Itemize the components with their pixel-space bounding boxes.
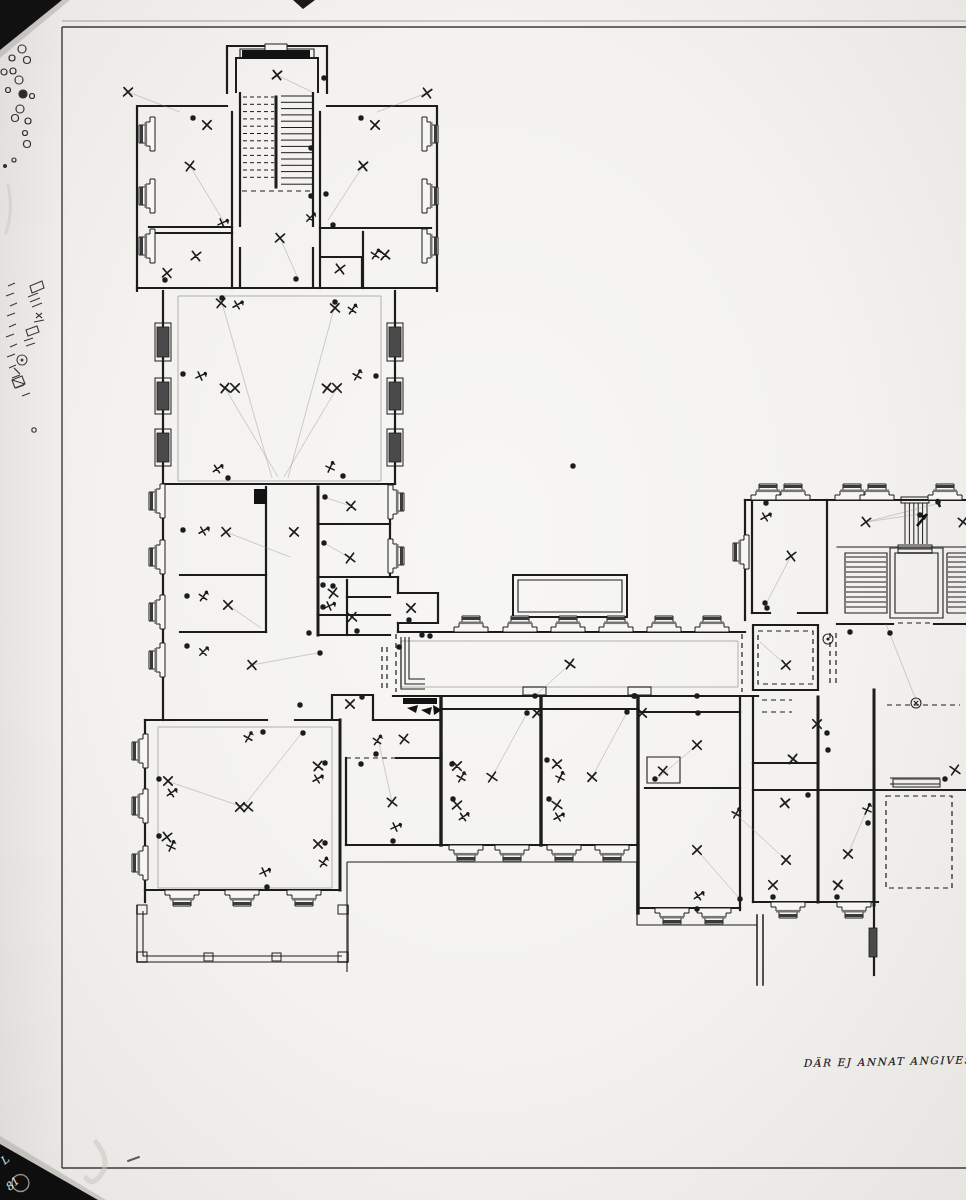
outlet-dot [332,299,337,304]
stairwell-hatching [243,96,966,607]
outlet-dot [762,600,767,605]
fixture-x-mark [861,517,870,526]
air-bubbles [1,45,35,168]
outlet-dot [321,75,326,80]
outlet-dot [694,693,699,698]
fixture-x-mark [313,761,322,770]
fixture-x-mark [163,269,172,278]
outlet-dot [358,115,363,120]
window-pilaster-icon [860,484,894,500]
outlet-dot [359,694,364,699]
switch-flag-mark [199,590,210,600]
outlet-dot [321,540,326,545]
fixture-x-mark [222,528,231,537]
outlet-dot [396,644,401,649]
fixture-x-mark [164,777,172,785]
window-pilaster-icon [287,890,321,906]
window-pilaster-icon [595,845,629,861]
outlet-dot [322,494,327,499]
switch-flag-mark [371,248,382,258]
switch-flag-mark [352,369,363,380]
window-pilaster-icon [776,484,810,500]
outlet-dot [156,776,161,781]
switch-flag-mark [199,525,210,536]
window-pilaster-icon [697,908,731,924]
switch-flag-mark [213,463,224,473]
switch-flag-mark [307,212,316,221]
outlet-dot [297,702,302,707]
fixture-x-mark [552,800,562,810]
switch-flag-marks [166,212,874,900]
switch-flag-mark [761,511,772,522]
switch-flag-mark [862,802,874,814]
window-pilaster-icon [599,616,633,632]
outlet-dot [390,838,395,843]
outlet-dot [427,633,432,638]
outlet-dot [694,906,699,911]
fixture-x-mark [191,251,200,260]
outlet-dot [162,277,167,282]
switch-flag-mark [554,811,565,822]
window-pilaster-icon [139,117,155,151]
fixture-x-mark [335,264,344,273]
fixture-x-mark [371,121,380,130]
outlet-dot [180,371,185,376]
fixture-x-mark [162,832,171,841]
switch-flag-mark [348,303,359,313]
window-pilaster-icon [139,229,155,263]
outlet-dot [322,840,327,845]
fixture-x-mark [399,734,408,743]
fixture-x-mark [124,88,133,97]
switch-flag-mark [325,599,337,611]
window-pilaster-icon [132,846,148,880]
window-pilaster-icon [388,539,404,573]
fixture-x-mark [272,70,281,79]
switch-flag-mark [459,811,470,821]
photo-smudges [6,185,139,1192]
switch-flag-mark [243,731,254,742]
outlet-dot [825,747,830,752]
fixture-x-mark [844,850,853,859]
film-fringes [0,0,106,1200]
outlet-dot [737,896,742,901]
window-pilaster-icon [503,616,537,632]
fixture-x-marks [124,70,966,889]
outlet-dot [695,710,700,715]
fixture-x-mark [333,384,342,393]
outlet-dot [942,776,947,781]
window-pilaster-icon [149,540,165,574]
fixture-x-mark [693,741,702,750]
fixture-x-mark [833,880,842,889]
outlet-dot [180,527,185,532]
outlet-dot [330,222,335,227]
fixture-x-mark [290,528,299,537]
window-pilaster-icon [695,616,729,632]
outlet-dot [320,604,325,609]
window-pilaster-icon [388,485,404,519]
window-pilaster-icon [733,535,749,569]
outlet-dots [156,75,947,911]
outlet-dot [322,760,327,765]
outlet-dot [264,884,269,889]
window-pilaster-icon [422,117,438,151]
fixture-x-mark [220,383,229,392]
switch-flag-mark [391,820,403,832]
outlet-dot [340,473,345,478]
outlet-dot [865,820,870,825]
window-pilaster-icon [647,616,681,632]
fixture-x-mark [185,161,194,170]
switch-flag-mark [456,771,467,782]
film-corner-triangle [293,0,315,9]
window-pilaster-icon [449,845,483,861]
fixture-x-mark [387,797,396,806]
fixture-x-mark [243,802,252,811]
outlet-dot [770,894,775,899]
window-pilasters [132,117,962,924]
outlet-dot [449,761,454,766]
outlet-dot [652,776,657,781]
switch-flag-mark [373,734,384,744]
window-pilaster-icon [139,179,155,213]
fixture-x-mark [950,765,960,775]
plan-thin-lines [137,49,966,972]
outlet-dot [308,193,313,198]
outlet-dot [330,583,335,588]
outlet-dot [917,512,922,517]
outlet-dot [763,500,768,505]
outlet-dot [824,730,829,735]
outlet-dot [306,630,311,635]
fixture-x-mark [407,604,416,613]
outlet-dot [570,463,575,468]
window-pilaster-icon [132,789,148,823]
window-pilaster-icon [422,179,438,213]
fixture-x-mark [248,661,257,670]
switch-flag-mark [200,646,209,655]
window-pilaster-icon [495,845,529,861]
fixture-x-mark [380,250,389,259]
fixture-x-mark [782,856,791,865]
switch-flag-mark [313,773,324,784]
fixture-x-mark [453,801,462,810]
fixture-x-mark [358,161,367,170]
fixture-x-mark [553,760,562,769]
fixture-x-mark [588,773,597,782]
fixture-x-mark [786,551,795,560]
outlet-dot [320,582,325,587]
outlet-dot [805,792,810,797]
window-pilaster-icon [551,616,585,632]
window-pilaster-icon [132,734,148,768]
plan-walls [137,46,966,985]
window-pilaster-icon [165,890,199,906]
scanned-floor-plan [0,0,966,1200]
outlet-dot [544,757,549,762]
outlet-dot [373,751,378,756]
fixture-x-mark [231,384,240,393]
outlet-dot [450,796,455,801]
outlet-dot [764,605,769,610]
wiring-lines [128,75,936,897]
switch-flag-mark [166,839,178,851]
switch-flag-mark [196,369,208,381]
window-pilaster-icon [771,902,805,918]
fixture-x-mark [203,121,212,130]
edge-stamp-marks [6,281,44,432]
fixture-x-mark [348,613,357,622]
outlet-dot [323,191,328,196]
outlet-dot [532,693,537,698]
outlet-dot [293,276,298,281]
outlet-dot [354,628,359,633]
fixture-x-mark [331,304,340,313]
fixture-x-mark [276,234,285,243]
outlet-dot [260,729,265,734]
fixture-x-mark [346,700,354,708]
outlet-dot [847,629,852,634]
outlet-dot [419,632,424,637]
window-pilaster-icon [149,595,165,629]
switch-flag-mark [260,865,272,877]
outlet-dot [373,373,378,378]
fixture-x-mark [346,501,355,510]
switch-flag-mark [233,299,244,310]
fixture-x-mark [322,383,331,392]
outlet-dot [358,761,363,766]
fixture-x-mark [769,881,778,890]
fixture-x-mark [345,553,354,562]
circled-fixture-marks [823,634,921,708]
outlet-dot [624,709,629,714]
window-pilaster-icon [422,229,438,263]
fixture-x-mark [782,661,791,670]
outlet-dot [887,630,892,635]
fixture-x-mark [958,517,966,526]
switch-flag-mark [694,890,705,900]
outlet-dot [406,617,411,622]
window-pilaster-icon [928,484,962,500]
window-pilaster-icon [547,845,581,861]
outlet-dot [190,115,195,120]
window-pilaster-icon [149,643,165,677]
outlet-dot [308,145,313,150]
outlet-dot [524,710,529,715]
outlet-dot [184,593,189,598]
window-pilaster-icon [655,908,689,924]
window-pilaster-icon [225,890,259,906]
switch-flag-mark [319,856,330,866]
outlet-dot [184,643,189,648]
outlet-dot [317,650,322,655]
fixture-x-mark [422,88,432,98]
outlet-dot [935,499,940,504]
window-pilaster-icon [454,616,488,632]
switch-flag-mark [325,460,337,472]
outlet-dot [225,475,230,480]
switch-flag-mark [167,787,178,797]
outlet-dot [631,693,636,698]
outlet-dot [300,730,305,735]
circled-fixture-mark [823,634,833,644]
fixture-x-mark [565,659,575,669]
fixture-x-mark [328,588,337,597]
fixture-x-mark [780,798,789,807]
fixture-x-mark [487,772,497,782]
outlet-dot [219,295,224,300]
fixture-x-mark [224,601,233,610]
fixture-x-mark [314,840,322,848]
outlet-dot [546,796,551,801]
fixture-x-mark [693,846,702,855]
outlet-dot [834,894,839,899]
outlet-dot [156,833,161,838]
window-pilaster-icon [837,902,871,918]
scanned-photo-page: { "photo": { "background": "#f3f2ef", "i… [0,0,966,1200]
switch-flag-mark [555,770,567,782]
window-pilaster-icon [149,484,165,518]
